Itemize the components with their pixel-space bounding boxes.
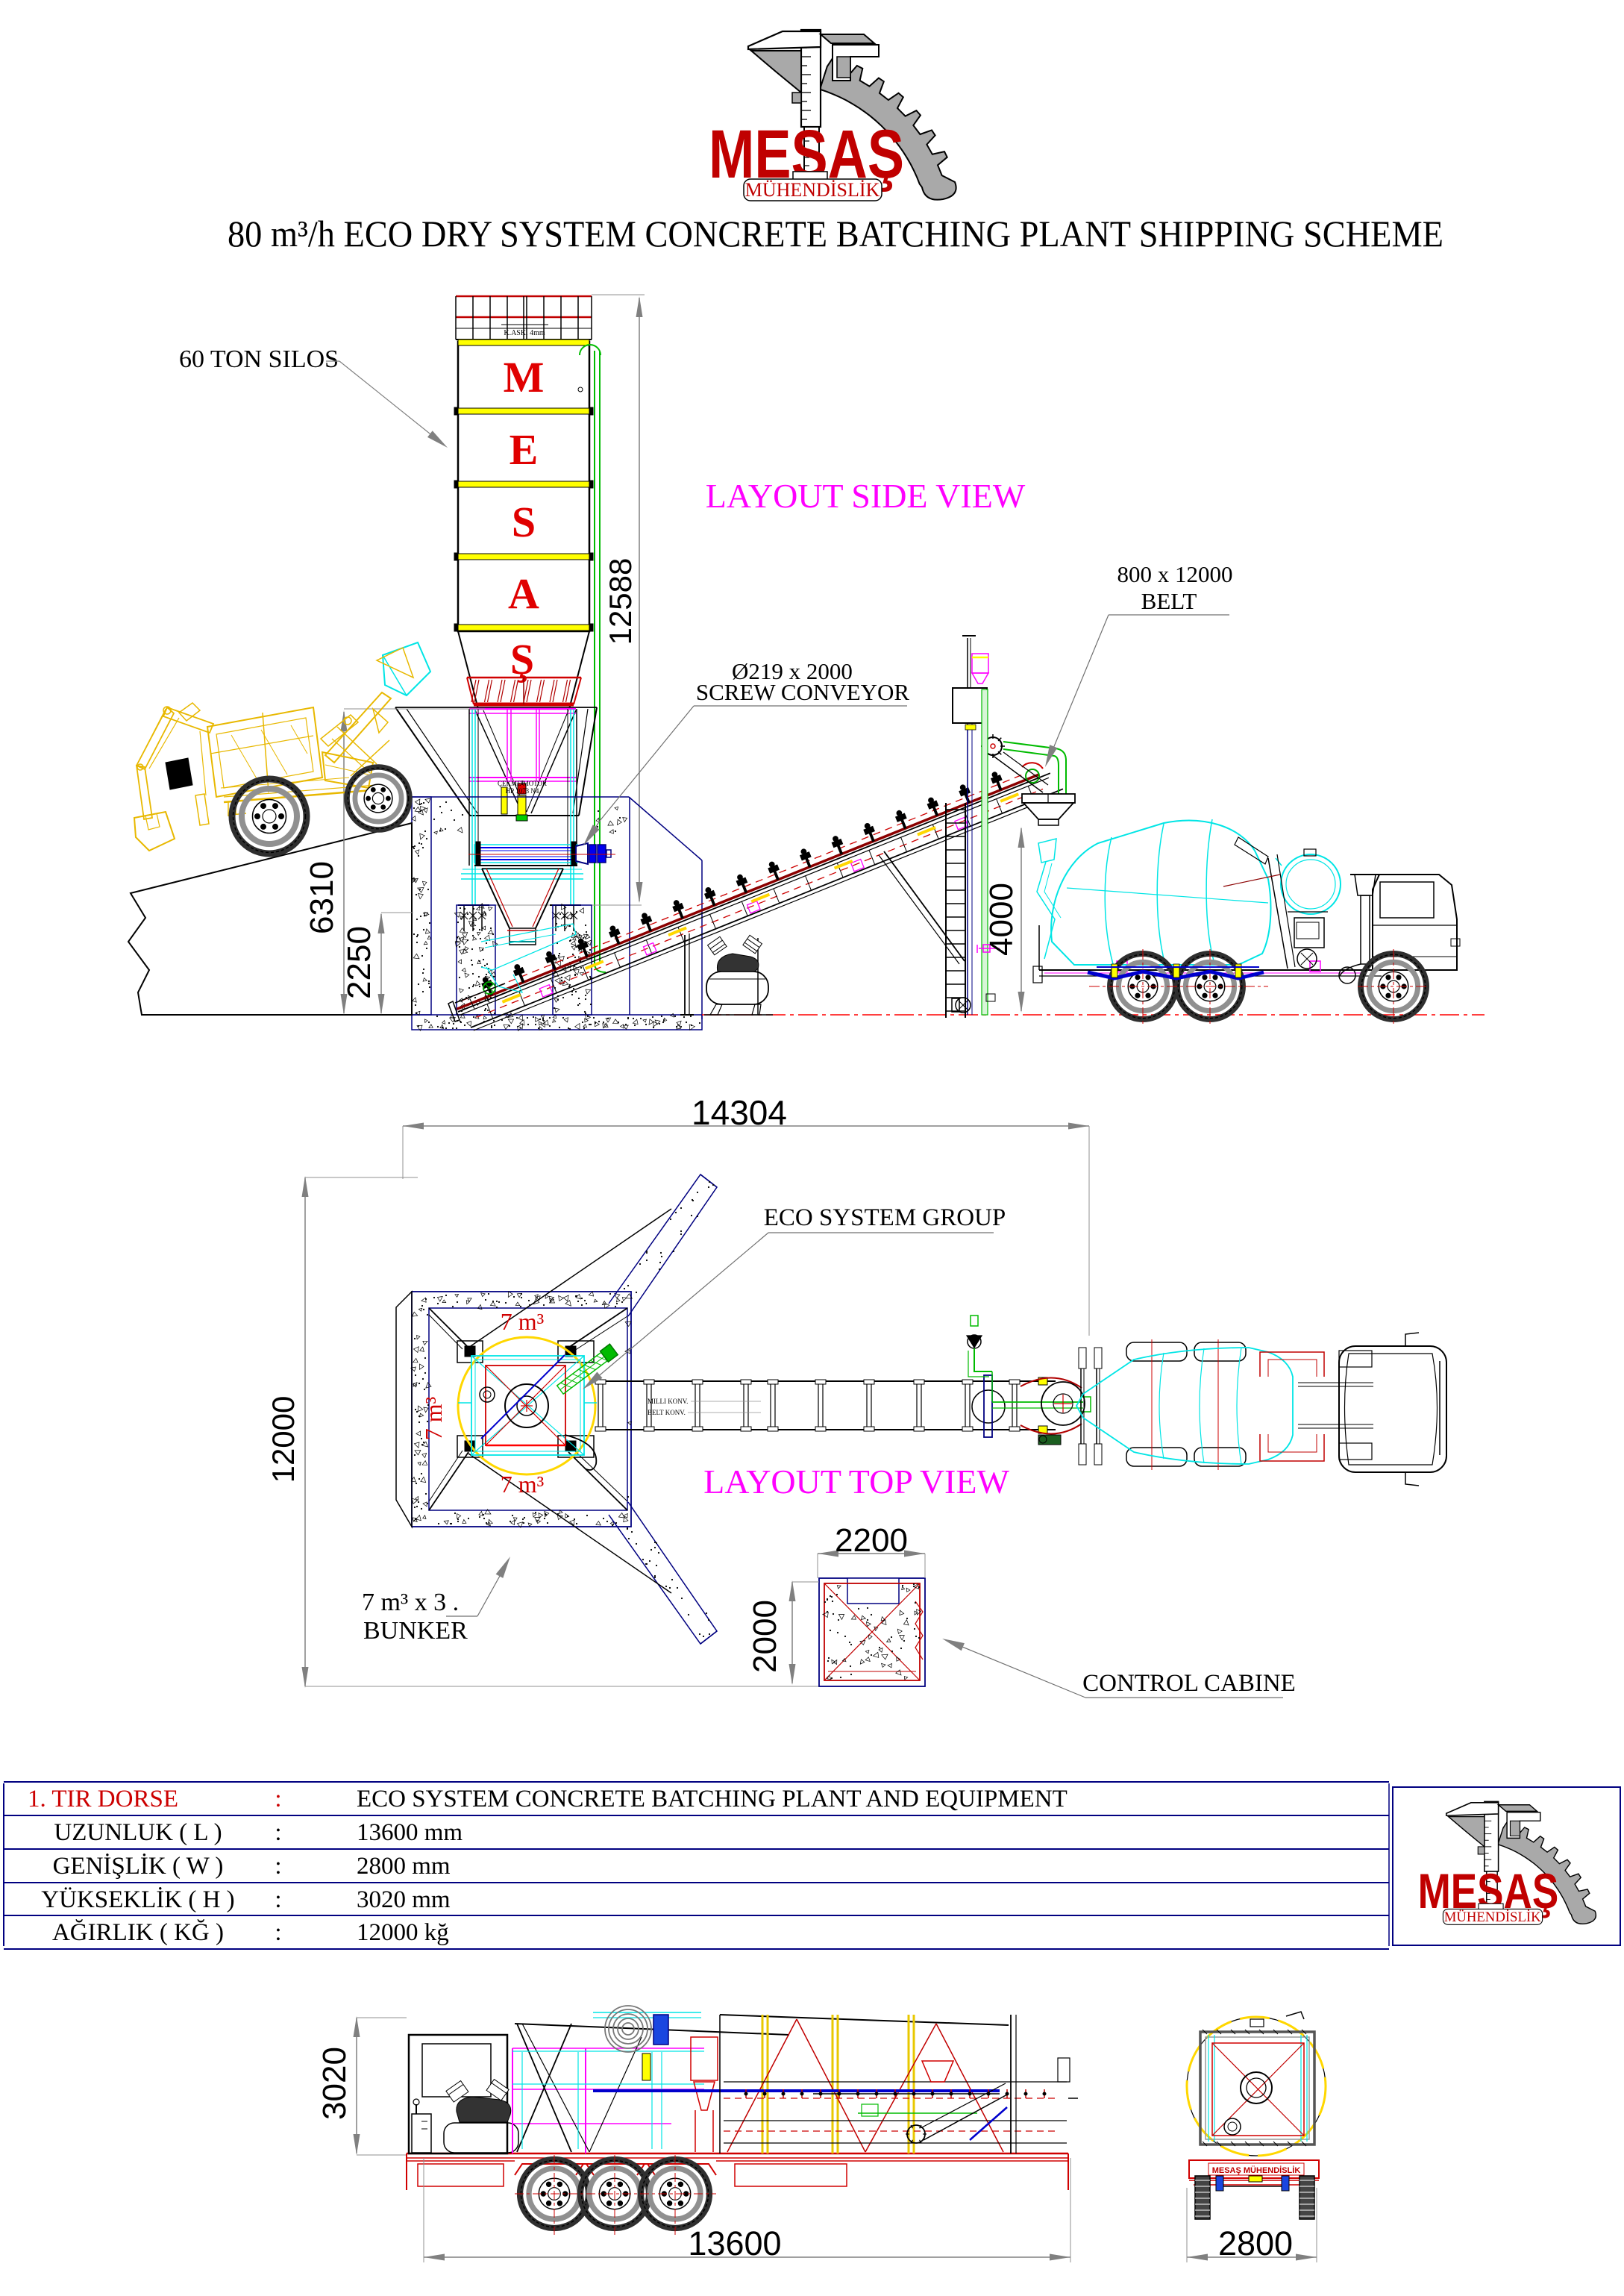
svg-text:12000: 12000: [266, 1396, 301, 1483]
svg-text:A: A: [508, 569, 539, 618]
svg-text:2250: 2250: [341, 926, 377, 999]
svg-text:2000: 2000: [747, 1600, 783, 1673]
svg-text:BUNKER: BUNKER: [363, 1617, 468, 1645]
svg-text:7 m³: 7 m³: [420, 1397, 447, 1440]
svg-text:800 x 12000: 800 x 12000: [1117, 561, 1233, 587]
svg-text::: :: [275, 1886, 281, 1913]
svg-text:13600: 13600: [688, 2224, 781, 2262]
svg-text:6310: 6310: [304, 861, 340, 934]
svg-text:12588: 12588: [603, 558, 638, 645]
svg-text:80 m³/h ECO DRY SYSTEM CONCRET: 80 m³/h ECO DRY SYSTEM CONCRETE BATCHING…: [228, 213, 1443, 254]
svg-text:3020 mm: 3020 mm: [357, 1886, 451, 1913]
svg-text:2800 mm: 2800 mm: [357, 1853, 451, 1880]
svg-text:AĞIRLIK ( KĞ ): AĞIRLIK ( KĞ ): [52, 1918, 224, 1946]
svg-text:M: M: [504, 353, 545, 401]
svg-text:MÜHENDİSLİK: MÜHENDİSLİK: [1444, 1909, 1541, 1925]
svg-text:GENİŞLİK ( W ): GENİŞLİK ( W ): [53, 1853, 224, 1880]
svg-text:MESAŞ MÜHENDİSLİK: MESAŞ MÜHENDİSLİK: [1212, 2165, 1301, 2175]
svg-text:K.ASK. 4mm: K.ASK. 4mm: [504, 329, 545, 337]
svg-text:E: E: [510, 425, 539, 474]
svg-text:13600 mm: 13600 mm: [357, 1819, 463, 1846]
svg-text:14304: 14304: [692, 1093, 787, 1132]
svg-text::: :: [275, 1919, 281, 1946]
svg-text:LAYOUT TOP VIEW: LAYOUT TOP VIEW: [703, 1463, 1009, 1501]
svg-text:BELT: BELT: [1141, 588, 1197, 614]
svg-text::: :: [275, 1853, 281, 1880]
svg-text:2200: 2200: [835, 1522, 908, 1559]
svg-text:HP 1073 N4: HP 1073 N4: [506, 787, 539, 795]
svg-text:7 m³: 7 m³: [501, 1308, 544, 1335]
svg-text:ECO SYSTEM GROUP: ECO SYSTEM GROUP: [764, 1204, 1006, 1231]
svg-text:MÜHENDİSLİK: MÜHENDİSLİK: [745, 179, 880, 201]
svg-text:ÇEKME MOTOR: ÇEKME MOTOR: [498, 780, 547, 787]
svg-text:LAYOUT SIDE VIEW: LAYOUT SIDE VIEW: [706, 477, 1026, 515]
svg-text:12000 kğ: 12000 kğ: [357, 1919, 449, 1946]
svg-text:S: S: [512, 498, 536, 546]
svg-text:BELT KONV.: BELT KONV.: [648, 1409, 686, 1416]
svg-text:UZUNLUK ( L ): UZUNLUK ( L ): [54, 1819, 222, 1846]
svg-text:7 m³: 7 m³: [501, 1471, 544, 1498]
svg-text:2800: 2800: [1218, 2224, 1293, 2262]
svg-text:4000: 4000: [983, 883, 1020, 956]
svg-text:ECO SYSTEM CONCRETE BATCHING P: ECO SYSTEM CONCRETE BATCHING PLANT AND E…: [357, 1786, 1067, 1812]
svg-text:Ş: Ş: [510, 635, 534, 684]
svg-text:YÜKSEKLİK ( H ): YÜKSEKLİK ( H ): [41, 1886, 234, 1913]
svg-text:3020: 3020: [316, 2047, 353, 2120]
svg-text::: :: [275, 1819, 281, 1846]
svg-text:60 TON SILOS: 60 TON SILOS: [179, 345, 339, 373]
svg-text:SCREW CONVEYOR: SCREW CONVEYOR: [696, 679, 910, 705]
svg-text:CONTROL CABINE: CONTROL CABINE: [1082, 1670, 1296, 1697]
svg-text:1. TIR DORSE: 1. TIR DORSE: [28, 1786, 178, 1812]
svg-text:7 m³ x 3 .: 7 m³ x 3 .: [362, 1589, 459, 1616]
svg-text::: :: [275, 1786, 281, 1812]
svg-text:MILLI KONV.: MILLI KONV.: [648, 1398, 688, 1405]
